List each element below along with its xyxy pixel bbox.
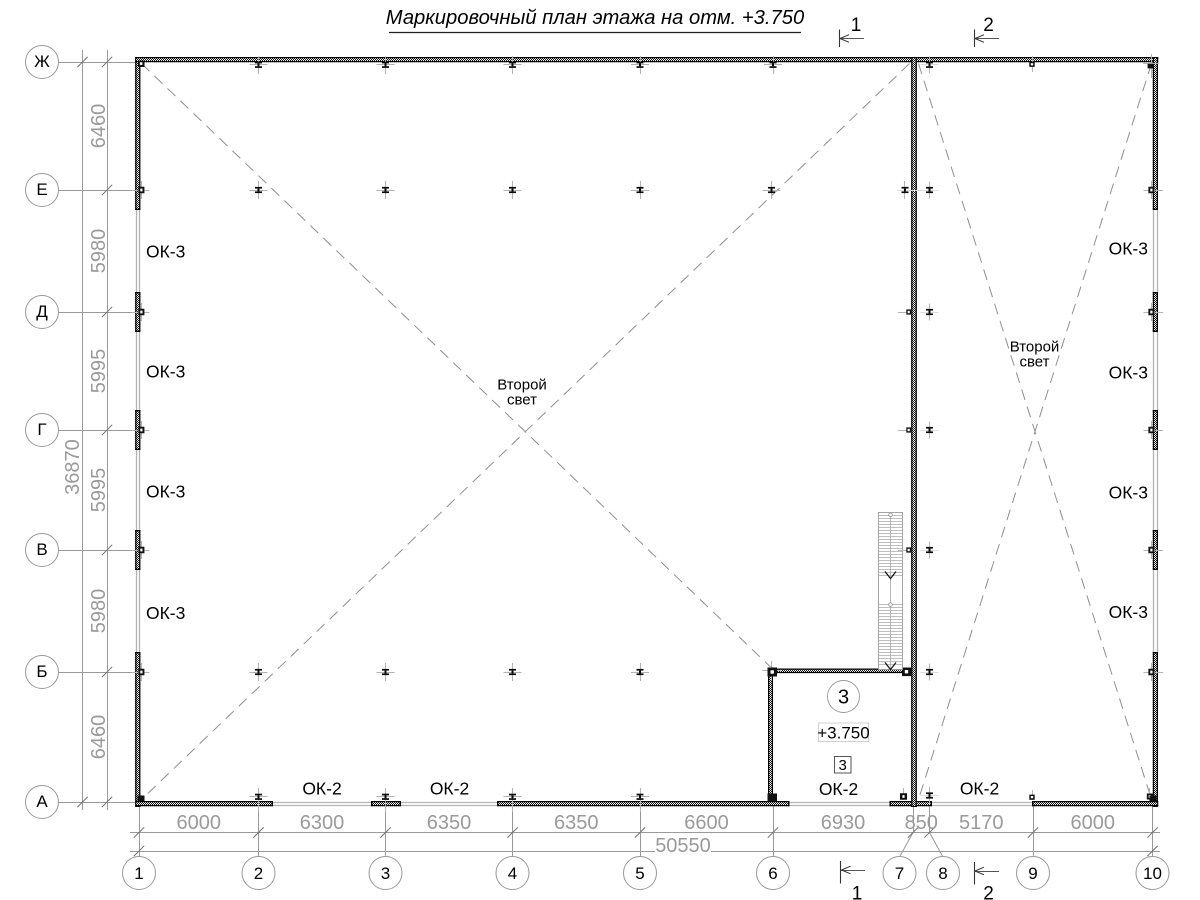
- svg-text:6350: 6350: [427, 812, 472, 834]
- svg-text:8: 8: [938, 864, 947, 883]
- svg-text:3: 3: [838, 687, 849, 709]
- svg-text:Д: Д: [36, 302, 48, 321]
- svg-text:5980: 5980: [88, 589, 110, 634]
- svg-text:3: 3: [839, 757, 847, 774]
- svg-text:ОК-3: ОК-3: [146, 362, 185, 382]
- svg-text:9: 9: [1028, 864, 1037, 883]
- svg-text:2: 2: [983, 15, 994, 36]
- svg-text:свет: свет: [1019, 354, 1049, 371]
- svg-text:6350: 6350: [554, 812, 599, 834]
- svg-text:6930: 6930: [821, 812, 866, 834]
- svg-text:1: 1: [851, 15, 862, 36]
- svg-text:2: 2: [983, 884, 994, 900]
- svg-text:ОК-2: ОК-2: [430, 779, 469, 799]
- svg-text:свет: свет: [507, 392, 537, 409]
- svg-text:6300: 6300: [300, 812, 345, 834]
- svg-text:6460: 6460: [88, 715, 110, 760]
- svg-text:5980: 5980: [88, 229, 110, 274]
- svg-text:ОК-3: ОК-3: [146, 603, 185, 623]
- svg-text:6600: 6600: [684, 812, 729, 834]
- svg-text:ОК-2: ОК-2: [960, 779, 999, 799]
- svg-text:10: 10: [1143, 864, 1162, 883]
- svg-text:ОК-2: ОК-2: [819, 779, 858, 799]
- svg-text:1: 1: [852, 884, 863, 900]
- svg-text:А: А: [36, 792, 48, 811]
- svg-text:4: 4: [508, 864, 517, 883]
- svg-text:Е: Е: [36, 180, 47, 199]
- svg-text:Маркировочный план этажа на от: Маркировочный план этажа на отм. +3.750: [386, 7, 805, 29]
- svg-text:+3.750: +3.750: [817, 723, 869, 742]
- svg-text:5995: 5995: [88, 468, 110, 513]
- svg-text:ОК-3: ОК-3: [1109, 602, 1148, 622]
- svg-text:5995: 5995: [88, 349, 110, 394]
- svg-text:6: 6: [768, 864, 777, 883]
- svg-text:ОК-3: ОК-3: [146, 242, 185, 262]
- svg-text:6000: 6000: [177, 812, 222, 834]
- svg-text:ОК-3: ОК-3: [1109, 363, 1148, 383]
- svg-text:850: 850: [905, 812, 938, 834]
- svg-text:2: 2: [254, 864, 263, 883]
- svg-text:ОК-3: ОК-3: [1109, 239, 1148, 259]
- svg-text:6000: 6000: [1071, 812, 1116, 834]
- svg-text:Ж: Ж: [34, 52, 50, 71]
- svg-text:ОК-3: ОК-3: [146, 482, 185, 502]
- svg-text:Б: Б: [36, 662, 47, 681]
- svg-text:36870: 36870: [62, 439, 84, 495]
- svg-text:ОК-3: ОК-3: [1109, 483, 1148, 503]
- svg-text:3: 3: [381, 864, 390, 883]
- svg-text:6460: 6460: [88, 104, 110, 149]
- svg-text:1: 1: [134, 864, 143, 883]
- svg-text:5: 5: [635, 864, 644, 883]
- svg-text:50550: 50550: [655, 835, 711, 857]
- svg-text:5170: 5170: [959, 812, 1004, 834]
- svg-text:В: В: [36, 540, 47, 559]
- svg-text:7: 7: [895, 864, 904, 883]
- svg-text:Г: Г: [37, 420, 46, 439]
- svg-text:ОК-2: ОК-2: [302, 779, 341, 799]
